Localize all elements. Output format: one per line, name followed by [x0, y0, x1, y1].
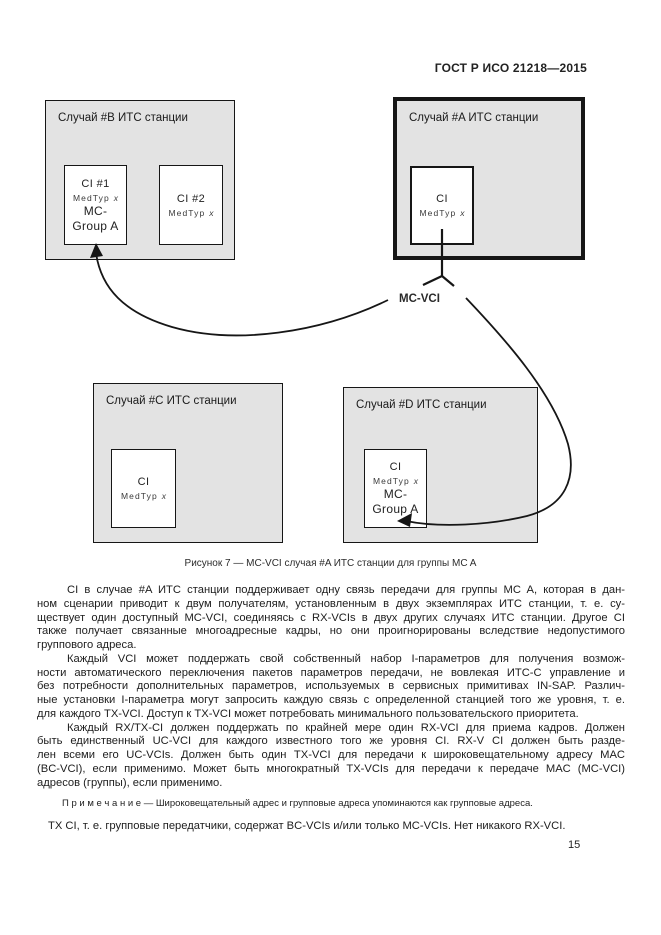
body-line: лен всеми его UC-VCIs. Должен быть один …: [37, 749, 625, 763]
mc-vci-label: MC-VCI: [399, 293, 440, 305]
body-line: ные установки I-параметра могут запросит…: [37, 694, 625, 708]
ci-box-b1: CI #1 MedTypx MC- Group A: [64, 165, 127, 245]
page-number: 15: [568, 839, 580, 851]
mc-group-line1: MC-: [84, 204, 108, 218]
station-case-c: Случай #C ИТС станции CI MedTypx: [93, 383, 283, 543]
ci-box-a: CI MedTypx: [410, 166, 474, 245]
medtyp-label: MedTypx: [373, 476, 418, 486]
curve-to-case-b: [96, 253, 388, 335]
figure-caption: Рисунок 7 — MC-VCI случая #A ИТС станции…: [0, 558, 661, 569]
body-text: CI в случае #A ИТС станции поддерживает …: [37, 584, 625, 834]
final-line: TX CI, т. е. групповые передатчики, соде…: [37, 820, 625, 834]
mc-group-line2: Group A: [372, 502, 418, 516]
ci-box-b2: CI #2 MedTypx: [159, 165, 223, 245]
note-line: П р и м е ч а н и е — Широковещательный …: [62, 797, 625, 811]
fork-left: [423, 276, 442, 285]
station-case-d-title: Случай #D ИТС станции: [356, 399, 487, 411]
station-case-b-title: Случай #B ИТС станции: [58, 112, 188, 124]
station-case-a: Случай #A ИТС станции CI MedTypx: [393, 97, 585, 260]
body-line: ном сценарии приводит к двум получателям…: [37, 598, 625, 612]
station-case-b: Случай #B ИТС станции CI #1 MedTypx MC- …: [45, 100, 235, 260]
medtyp-label: MedTypx: [419, 208, 464, 218]
body-line: без потребности дополнительных параметро…: [37, 680, 625, 694]
medtyp-label: MedTypx: [168, 208, 213, 218]
body-line: также получает связанные многоадресные к…: [37, 625, 625, 639]
ci-box-c: CI MedTypx: [111, 449, 176, 528]
figure-7-diagram: Случай #B ИТС станции CI #1 MedTypx MC- …: [0, 0, 661, 580]
ci-name: CI: [390, 461, 402, 473]
body-line: ществует один доступный MC-VCI, соединяя…: [37, 612, 625, 626]
body-line: группового адреса.: [37, 639, 625, 653]
mc-group-line2: Group A: [72, 219, 118, 233]
mc-group-line1: MC-: [384, 487, 408, 501]
ci-box-d: CI MedTypx MC- Group A: [364, 449, 427, 528]
medtyp-label: MedTypx: [73, 193, 118, 203]
ci-name: CI #1: [81, 178, 109, 190]
fork-right: [442, 276, 454, 286]
ci-name: CI: [436, 193, 448, 205]
body-line: для каждого TX-VCI. Доступ к TX-VCI може…: [37, 708, 625, 722]
medtyp-label: MedTypx: [121, 491, 166, 501]
ci-name: CI: [138, 476, 150, 488]
station-case-a-title: Случай #A ИТС станции: [409, 112, 538, 124]
document-page: ГОСТ Р ИСО 21218—2015 Случай #B ИТС стан…: [0, 0, 661, 935]
body-line: быть единственный UC-VCI для каждого изв…: [37, 735, 625, 749]
body-line: (BC-VCI), если применимо. Может быть мно…: [37, 763, 625, 777]
station-case-d: Случай #D ИТС станции CI MedTypx MC- Gro…: [343, 387, 538, 543]
ci-name: CI #2: [177, 193, 205, 205]
station-case-c-title: Случай #C ИТС станции: [106, 395, 237, 407]
body-line: адресов (группы), если применимо.: [37, 777, 625, 791]
body-line: ности автоматического переключения пакет…: [37, 667, 625, 681]
body-line: CI в случае #A ИТС станции поддерживает …: [37, 584, 625, 598]
body-line: Каждый RX/TX-CI должен поддержать по кра…: [37, 722, 625, 736]
body-line: Каждый VCI может поддержать свой собстве…: [37, 653, 625, 667]
